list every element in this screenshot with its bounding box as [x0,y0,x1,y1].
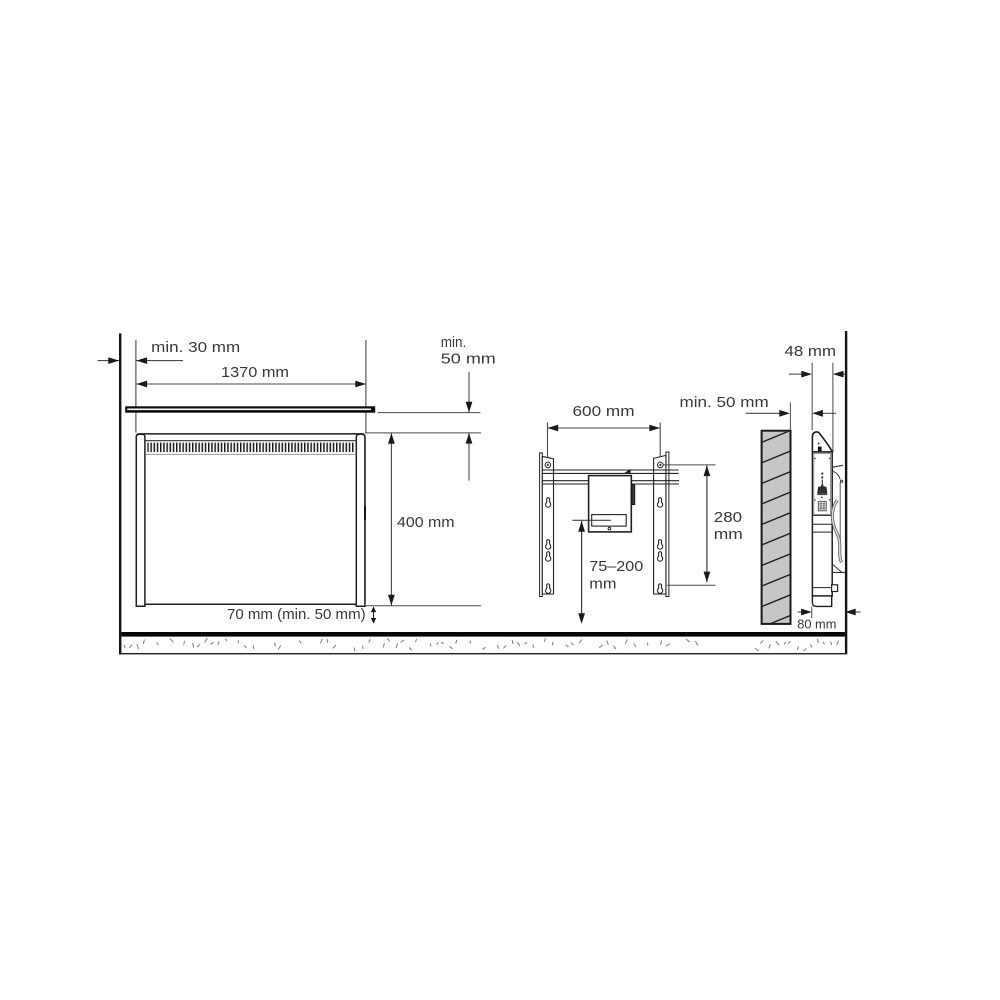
svg-text:600 mm: 600 mm [573,403,635,420]
svg-text:50 mm: 50 mm [441,350,496,367]
svg-text:48 mm: 48 mm [785,343,837,360]
svg-text:70 mm (min. 50 mm): 70 mm (min. 50 mm) [227,606,366,623]
svg-text:280: 280 [714,509,742,526]
svg-text:75–200: 75–200 [589,558,643,575]
svg-text:min. 50 mm: min. 50 mm [680,394,769,411]
svg-text:400 mm: 400 mm [397,514,455,531]
svg-text:1370 mm: 1370 mm [221,364,289,381]
svg-text:mm: mm [714,526,743,543]
svg-text:mm: mm [589,575,616,592]
svg-text:min. 30 mm: min. 30 mm [151,339,240,356]
svg-text:min.: min. [441,334,467,351]
svg-text:80 mm: 80 mm [797,617,836,632]
